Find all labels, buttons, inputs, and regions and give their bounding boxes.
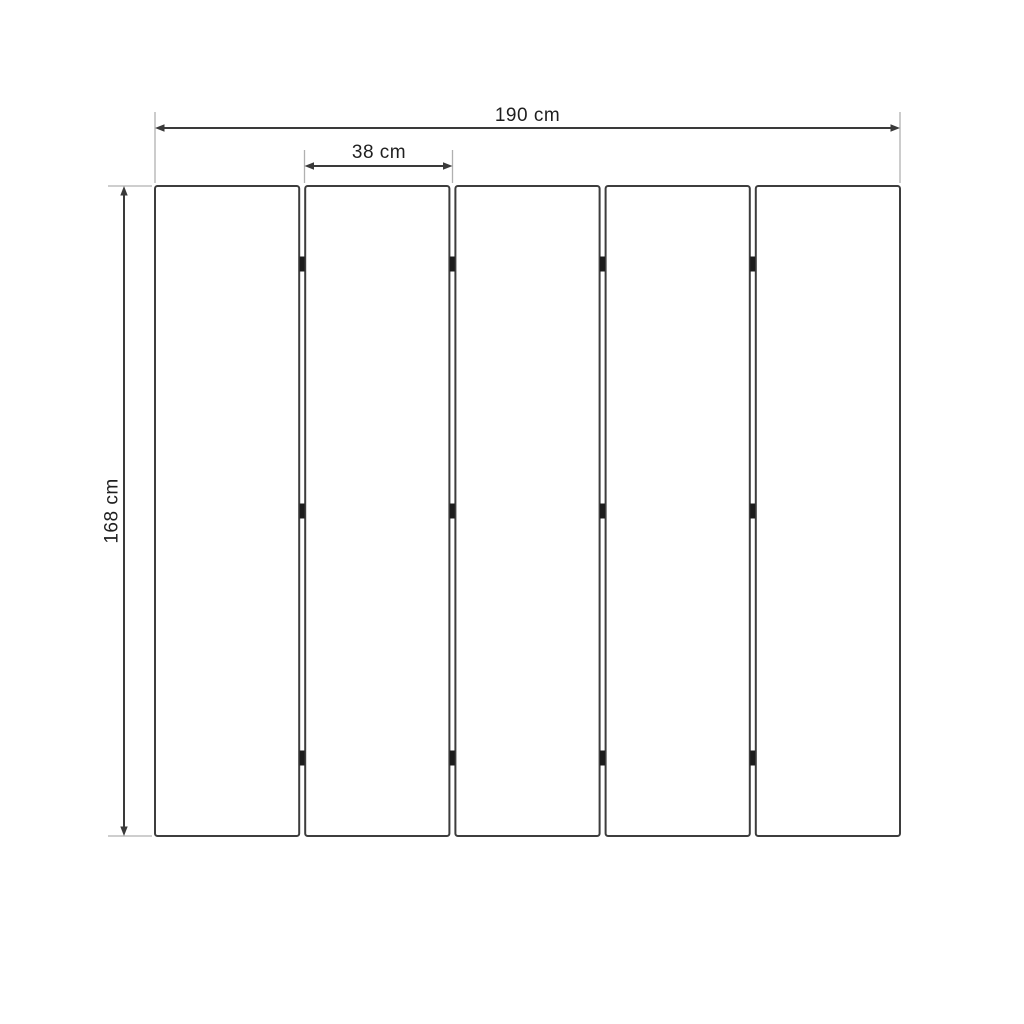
height-label: 168 cm <box>102 478 123 543</box>
hinge-mark <box>450 751 455 766</box>
panels <box>155 186 900 836</box>
panel <box>756 186 900 836</box>
total-width-label: 190 cm <box>495 105 560 126</box>
hinge-mark <box>600 751 605 766</box>
hinge-mark <box>750 751 755 766</box>
hinge-mark <box>300 751 305 766</box>
panel <box>455 186 599 836</box>
panel <box>305 186 449 836</box>
dimension-diagram: 190 cm 38 cm 168 cm <box>0 0 1024 1024</box>
hinge-mark <box>450 504 455 519</box>
arrowhead-down-icon <box>120 827 127 837</box>
panel-width-label: 38 cm <box>352 142 406 163</box>
dimension-drawing-page: 190 cm 38 cm 168 cm <box>0 0 1024 1024</box>
hinge-mark <box>750 257 755 272</box>
arrowhead-left-icon <box>155 124 165 131</box>
arrowhead-up-icon <box>120 186 127 196</box>
hinge-mark <box>300 257 305 272</box>
hinge-mark <box>600 504 605 519</box>
arrowhead-left-icon <box>305 162 315 169</box>
hinge-mark <box>600 257 605 272</box>
hinge-mark <box>450 257 455 272</box>
panel <box>606 186 750 836</box>
arrowhead-right-icon <box>891 124 901 131</box>
panel <box>155 186 299 836</box>
arrowhead-right-icon <box>443 162 453 169</box>
panel-width-dimension <box>305 162 453 169</box>
hinge-mark <box>750 504 755 519</box>
hinge-mark <box>300 504 305 519</box>
